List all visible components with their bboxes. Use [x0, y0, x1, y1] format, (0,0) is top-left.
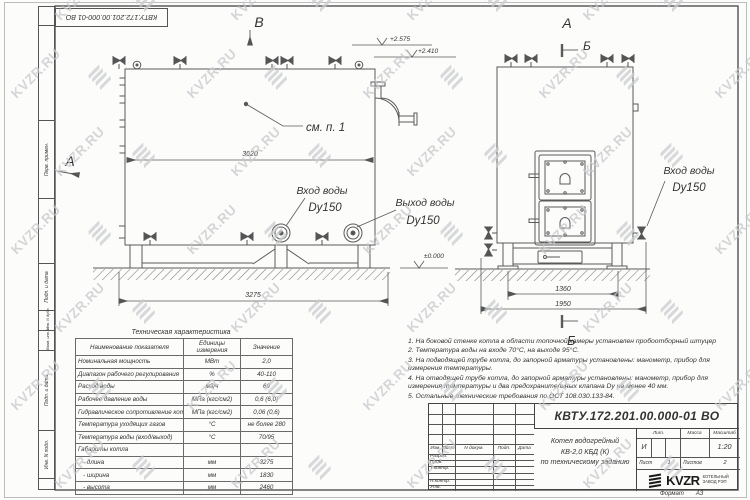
scale-label: Масштаб: [709, 429, 740, 438]
company-logo: KVZR КОТЕЛЬНЫЙ ЗАВОД РЭП: [637, 469, 740, 491]
valve-icon: [329, 56, 341, 69]
spec-cell: °С: [184, 418, 241, 431]
outlet-pipe-elbow: [371, 82, 417, 150]
spec-cell: МПа (кгс/см2): [184, 406, 241, 419]
margin-box: [38, 25, 55, 121]
front-view: 3020 см. п. 1 В +2.575 +2.41: [57, 14, 456, 306]
col-podp: Подп.: [493, 444, 515, 453]
col-list: Лист: [442, 444, 455, 453]
spec-cell: 3275: [241, 456, 293, 469]
view-b-label: В: [254, 14, 263, 30]
spec-cell: 40-110: [241, 368, 293, 381]
inlet-caption: Вход воды: [297, 185, 348, 197]
side-inlet-caption: Вход воды: [664, 165, 715, 177]
lit-label: Лит.: [637, 429, 680, 438]
sheets-value: 2: [719, 458, 731, 467]
margin-stamp-vzam-inv: Взам. инв. N: [38, 330, 55, 351]
margin-stamp-label: Взам. инв. N: [40, 331, 55, 350]
note-line: 5. Остальные технические требования по О…: [408, 393, 742, 402]
product-name-line3: по техническому заданию: [534, 457, 636, 468]
spec-col-header: Единицы измерения: [184, 339, 241, 356]
valve-icon: [505, 54, 517, 67]
elevation-2410-label: +2.410: [418, 48, 438, 55]
elevation-zero: ±0.000: [400, 253, 448, 268]
side-inlet-callout: Вход воды Dy150: [647, 165, 715, 226]
spec-cell: 70/95: [241, 431, 293, 444]
spec-cell: мм: [184, 481, 241, 494]
spec-header-row: Наименование показателя Единицы измерени…: [76, 339, 293, 356]
see-note-label: см. п. 1: [306, 122, 345, 134]
margin-box: [38, 6, 55, 26]
spec-row: Габариты котла: [76, 444, 293, 457]
furnace-doors: [529, 151, 595, 245]
outlet-dn: Dy150: [406, 215, 440, 227]
dimension-1360-label: 1360: [555, 286, 571, 293]
spec-cell: - высота: [76, 481, 184, 494]
elevation-2410: +2.410: [374, 48, 456, 57]
side-inlet-dn: Dy150: [672, 182, 706, 194]
drain-valve-icon: [316, 232, 328, 245]
valve-icon: [113, 56, 125, 69]
format-value: А3: [696, 491, 703, 497]
inlet-nozzle-icon: [272, 224, 290, 242]
ground-hatch-2: [455, 269, 650, 281]
valve-icon: [525, 54, 537, 67]
spec-cell: 2,0: [241, 356, 293, 369]
ground-hatch: [93, 268, 390, 280]
grid-line: [637, 438, 740, 439]
format-label: Формат: [660, 491, 684, 497]
margin-stamp-perv-primen: Перв. примен.: [38, 120, 55, 199]
side-view-label: А: [561, 15, 571, 31]
doc-number-stamp-text: КВТУ.172.201.00.000-01 ВО: [56, 9, 167, 26]
note-line: 2. Температура воды на входе 70°С, на вы…: [408, 347, 742, 356]
spec-table-title: Техническая характеристика: [75, 329, 287, 336]
note-line: 3. На подводящей трубе котла, до запорно…: [408, 357, 742, 375]
dimension-1950-label: 1950: [555, 301, 571, 308]
grid-line: [429, 434, 534, 435]
spec-cell: м3/ч: [184, 381, 241, 394]
lit-value: И: [637, 442, 651, 451]
sheets-label: Листов: [683, 458, 709, 467]
scale-value: 1:20: [709, 442, 740, 451]
spec-row: Температура уходящих газов°Сне более 280: [76, 418, 293, 431]
spec-row: Рабочее давление водыМПа (кгс/см2)0,6 (6…: [76, 393, 293, 406]
valve-icon: [266, 56, 278, 69]
title-block-right: Лит. Масса Масштаб И 1:20 Лист 1 Листов …: [636, 429, 739, 491]
spec-row: - ширинамм1830: [76, 469, 293, 482]
valve-icon: [622, 54, 634, 67]
margin-stamp-label: Подп. и дата: [40, 264, 55, 310]
company-name: KVZR: [666, 473, 699, 488]
spec-cell: Рабочее давление воды: [76, 393, 184, 406]
spec-col-header: Значение: [241, 339, 293, 356]
spec-cell: 0,06 (0,6): [241, 406, 293, 419]
valve-icon: [281, 56, 293, 69]
margin-stamp-podp-data-2: Подп. и дата: [38, 350, 55, 431]
margin-stamp-label: Перв. примен.: [40, 121, 55, 198]
spec-cell: Температура уходящих газов: [76, 418, 184, 431]
title-block-doc-number: КВТУ.172.201.00.000-01 ВО: [534, 404, 739, 429]
mass-label: Масса: [680, 429, 709, 438]
side-valve-icon: [484, 227, 497, 239]
margin-box: [38, 198, 55, 264]
sheet-label: Лист: [639, 458, 659, 467]
note-line: 1. На боковой стенке котла в области топ…: [408, 338, 742, 347]
spec-cell: мм: [184, 469, 241, 482]
company-subtitle-line2: ЗАВОД РЭП: [703, 480, 729, 485]
outlet-nozzle-icon: [344, 224, 362, 242]
format-label-block: ФорматА3: [660, 491, 715, 497]
see-note-callout: см. п. 1: [244, 102, 345, 134]
spec-table: Наименование показателя Единицы измерени…: [75, 338, 293, 495]
title-block: Изм. Лист N докум. Подп. Дата Разраб. Пр…: [428, 403, 738, 490]
drain-valve-icon: [241, 232, 253, 245]
spec-cell: 69: [241, 381, 293, 394]
spec-cell: - длина: [76, 456, 184, 469]
dimension-3275-label: 3275: [245, 292, 261, 299]
view-a-label: А: [64, 153, 74, 169]
company-subtitle: КОТЕЛЬНЫЙ ЗАВОД РЭП: [703, 475, 729, 485]
view-a-arrow: А: [57, 153, 79, 175]
spec-cell: 2460: [241, 481, 293, 494]
dimension-3020-label: 3020: [242, 151, 258, 158]
section-b-top-label: Б: [583, 39, 591, 53]
drain-valve-icon: [144, 232, 156, 245]
margin-stamp-label: Подп. и дата: [40, 351, 55, 430]
spec-cell: [241, 444, 293, 457]
note-line: 4. На отводящей трубе котла, до запорной…: [408, 375, 742, 393]
doc-number-stamp: КВТУ.172.201.00.000-01 ВО: [55, 8, 168, 27]
margin-stamp-podp-data-1: Подп. и дата: [38, 263, 55, 311]
spec-row: - длинамм3275: [76, 456, 293, 469]
title-block-name: Котел водогрейный КВ-2,0 КБД (К) по техн…: [534, 429, 636, 491]
spec-cell: Габариты котла: [76, 444, 184, 457]
wall-bracket: [633, 104, 638, 111]
elevation-2575: +2.575: [352, 36, 432, 45]
margin-box: [38, 478, 55, 490]
grid-line: [429, 414, 534, 415]
inlet-valve-icon: [633, 227, 646, 239]
spec-cell: Температура воды (вход/выход): [76, 431, 184, 444]
drawing-sheet: 3020 см. п. 1 В +2.575 +2.41: [0, 0, 750, 500]
spec-cell: 0,6 (6,0): [241, 393, 293, 406]
spec-cell: не более 280: [241, 418, 293, 431]
valve-icon: [174, 56, 186, 69]
lifting-lug-icon: [133, 61, 363, 69]
side-support-skid: [498, 243, 627, 269]
side-view: А Б Б: [455, 15, 715, 348]
side-valve-icon: [484, 244, 497, 256]
grid-line: [651, 438, 652, 457]
outlet-caption: Выход воды: [395, 197, 454, 209]
elevation-2575-label: +2.575: [390, 36, 410, 43]
wall-brackets: [119, 78, 125, 238]
support-skid: [130, 245, 370, 268]
margin-stamp-label: Инв. N подл.: [40, 431, 55, 478]
spec-cell: %: [184, 368, 241, 381]
grid-line: [429, 424, 534, 425]
spec-cell: °С: [184, 431, 241, 444]
inlet-callout: Вход воды Dy150: [286, 185, 348, 226]
col-ndocum: N докум.: [455, 444, 493, 453]
sign-utv: Утв.: [430, 485, 455, 494]
spec-cell: Расход воды: [76, 381, 184, 394]
spec-cell: Диапазон рабочего регулирования: [76, 368, 184, 381]
spec-col-header: Наименование показателя: [76, 339, 184, 356]
spec-cell: - ширина: [76, 469, 184, 482]
spec-row: Гидравлическое сопротивление котлаМПа (к…: [76, 406, 293, 419]
spec-row: - высотамм2460: [76, 481, 293, 494]
spec-row: Номинальная мощностьМВт2,0: [76, 356, 293, 369]
elevation-zero-label: ±0.000: [424, 253, 444, 260]
spec-cell: [184, 444, 241, 457]
spec-cell: МВт: [184, 356, 241, 369]
spec-row: Диапазон рабочего регулирования%40-110: [76, 368, 293, 381]
grid-line: [665, 438, 666, 457]
spec-cell: мм: [184, 456, 241, 469]
dimension-3020: 3020: [127, 151, 373, 160]
valve-icon: [601, 54, 613, 67]
view-b-arrow: В: [250, 14, 264, 45]
kvzr-coil-icon: [648, 473, 663, 488]
sign-tkontr: Т.контр.: [430, 466, 455, 475]
technical-notes: 1. На боковой стенке котла в области топ…: [408, 338, 742, 402]
spec-table-block: Техническая характеристика Наименование …: [75, 329, 287, 495]
section-b-top: Б: [562, 39, 591, 57]
margin-stamp-inv-podl: Инв. N подл.: [38, 430, 55, 479]
col-data: Дата: [515, 444, 534, 453]
spec-row: Температура воды (вход/выход)°С70/95: [76, 431, 293, 444]
spec-cell: МПа (кгс/см2): [184, 393, 241, 406]
spec-cell: 1830: [241, 469, 293, 482]
product-name-line2: КВ-2,0 КБД (К): [534, 447, 636, 458]
spec-cell: Гидравлическое сопротивление котла: [76, 406, 184, 419]
product-name-line1: Котел водогрейный: [534, 436, 636, 447]
outlet-callout: Выход воды Dy150: [357, 197, 455, 227]
sheet-value: 1: [663, 458, 675, 467]
col-izm: Изм.: [429, 444, 442, 453]
spec-row: Расход водым3/ч69: [76, 381, 293, 394]
inlet-dn: Dy150: [308, 202, 342, 214]
spec-cell: Номинальная мощность: [76, 356, 184, 369]
